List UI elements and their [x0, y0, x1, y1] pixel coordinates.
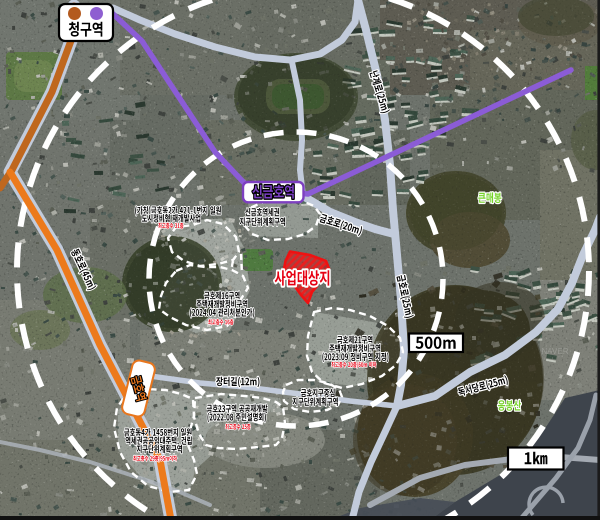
- svg-text:NAVER: NAVER: [542, 347, 569, 356]
